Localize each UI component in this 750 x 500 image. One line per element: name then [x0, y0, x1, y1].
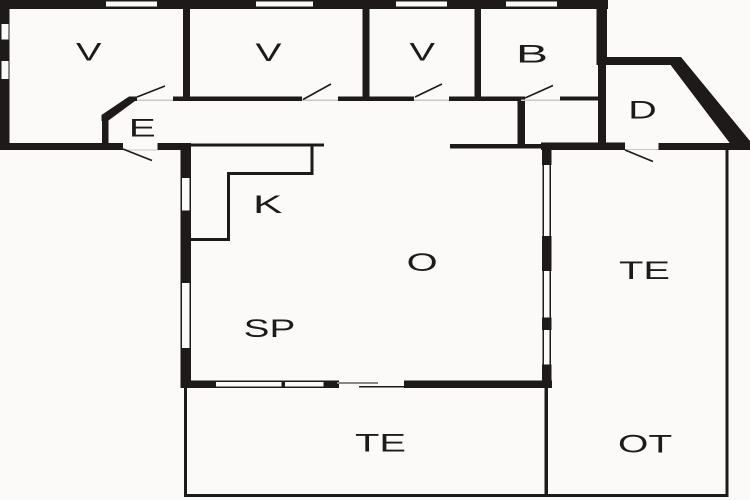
- svg-text:D: D: [628, 97, 657, 125]
- svg-text:SP: SP: [244, 315, 296, 343]
- svg-text:TE: TE: [619, 257, 670, 285]
- svg-text:TE: TE: [355, 430, 406, 458]
- svg-text:V: V: [410, 39, 436, 67]
- svg-text:V: V: [256, 39, 282, 67]
- svg-text:E: E: [129, 115, 156, 143]
- svg-text:B: B: [516, 41, 548, 69]
- svg-text:OT: OT: [618, 431, 672, 459]
- svg-text:V: V: [76, 39, 102, 67]
- svg-text:O: O: [407, 249, 438, 277]
- svg-text:K: K: [253, 191, 283, 219]
